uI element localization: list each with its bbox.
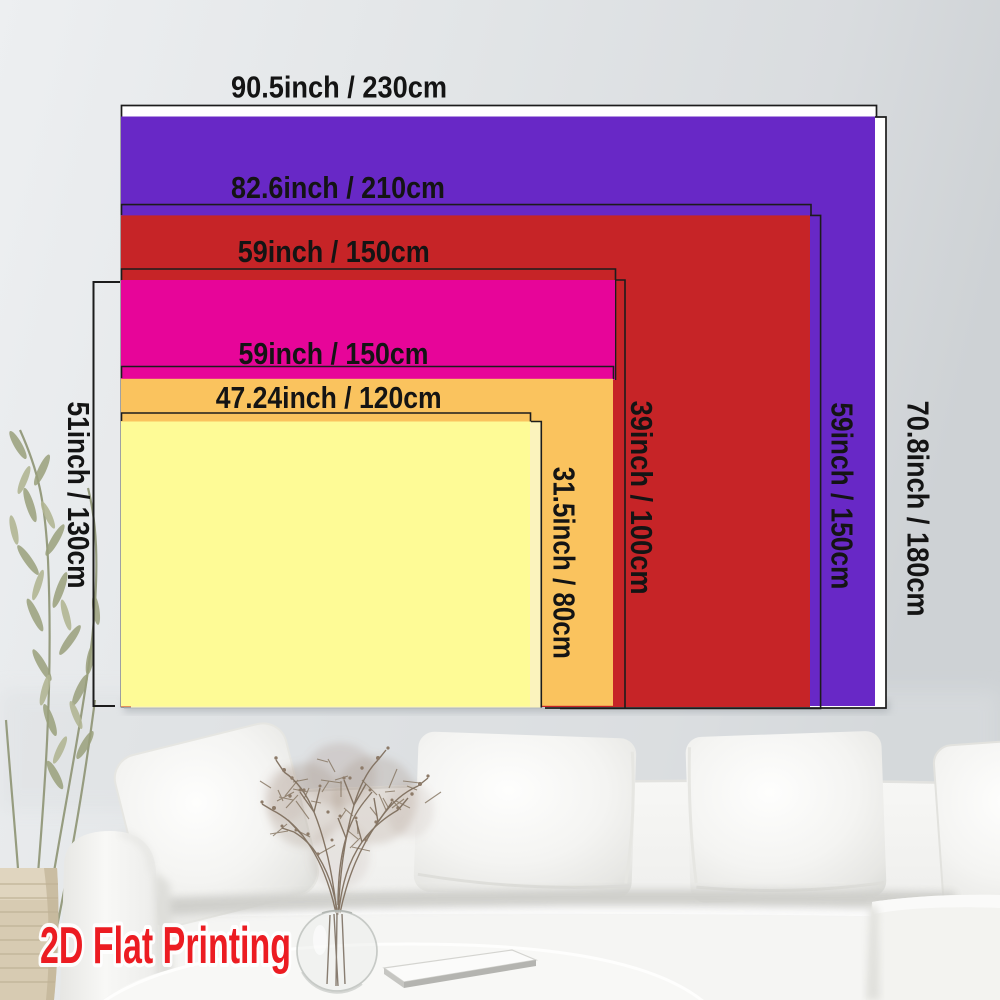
svg-text:59inch / 150cm: 59inch / 150cm [238, 234, 430, 269]
svg-text:51inch / 130cm: 51inch / 130cm [61, 402, 96, 589]
svg-text:2D Flat Printing: 2D Flat Printing [40, 917, 291, 975]
svg-text:39inch / 100cm: 39inch / 100cm [624, 401, 659, 595]
svg-text:59inch / 150cm: 59inch / 150cm [239, 336, 429, 371]
svg-text:70.8inch / 180cm: 70.8inch / 180cm [901, 401, 936, 617]
svg-text:47.24inch / 120cm: 47.24inch / 120cm [216, 380, 442, 415]
svg-text:82.6inch / 210cm: 82.6inch / 210cm [231, 170, 445, 205]
svg-text:90.5inch / 230cm: 90.5inch / 230cm [231, 70, 447, 105]
svg-text:59inch / 150cm: 59inch / 150cm [825, 402, 860, 589]
svg-text:31.5inch / 80cm: 31.5inch / 80cm [547, 467, 582, 659]
